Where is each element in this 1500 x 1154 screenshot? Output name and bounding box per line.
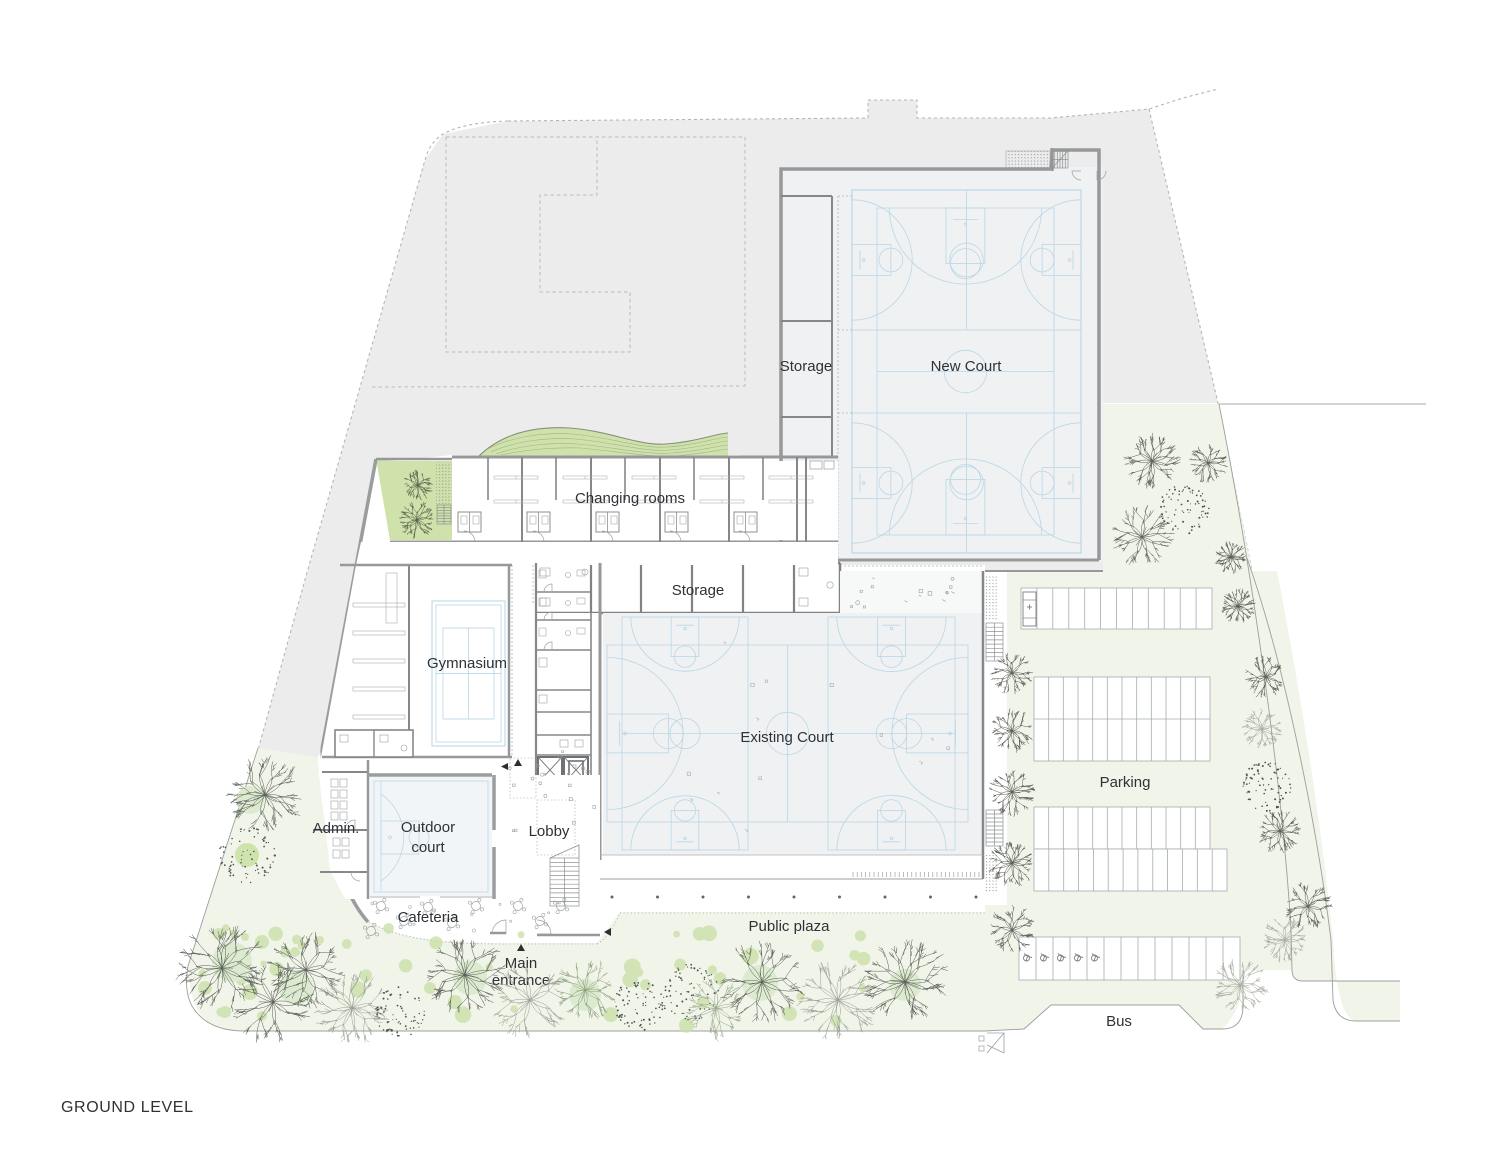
svg-text:Admin.: Admin. (313, 820, 360, 837)
svg-text:Existing Court: Existing Court (740, 729, 834, 746)
svg-text:court: court (411, 839, 445, 856)
svg-text:GROUND LEVEL: GROUND LEVEL (61, 1099, 194, 1116)
svg-text:Outdoor: Outdoor (401, 819, 455, 836)
svg-text:Storage: Storage (780, 358, 833, 375)
svg-text:Lobby: Lobby (529, 823, 570, 840)
svg-text:Bus: Bus (1106, 1013, 1132, 1030)
svg-text:New Court: New Court (931, 358, 1003, 375)
svg-text:Public plaza: Public plaza (749, 918, 831, 935)
svg-text:entrance: entrance (492, 972, 550, 989)
svg-text:Cafeteria: Cafeteria (398, 909, 460, 926)
svg-text:Gymnasium: Gymnasium (427, 655, 507, 672)
svg-text:Storage: Storage (672, 582, 725, 599)
svg-text:Changing rooms: Changing rooms (575, 490, 685, 507)
svg-text:Parking: Parking (1100, 774, 1151, 791)
